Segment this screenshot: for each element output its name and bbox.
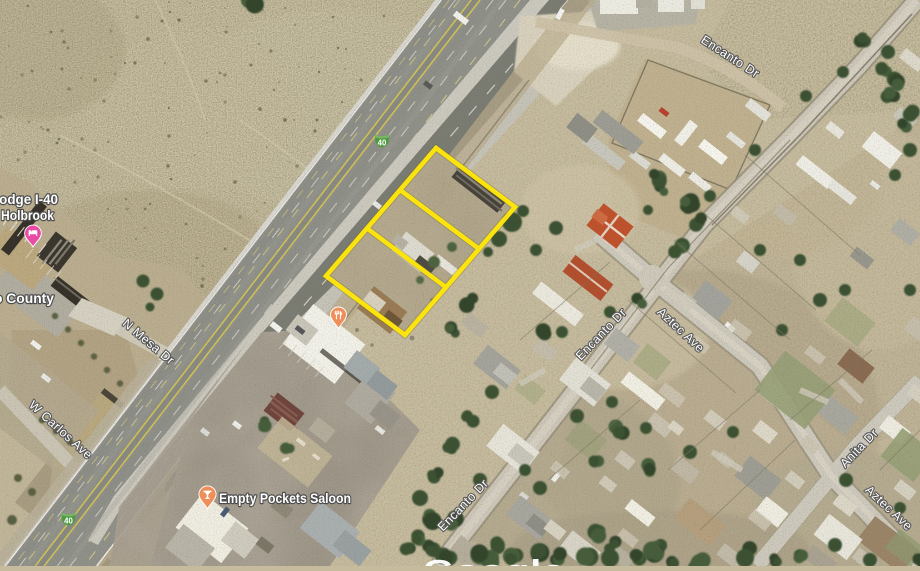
svg-text:40: 40	[378, 138, 387, 147]
svg-text:Lodge I-40: Lodge I-40	[0, 191, 58, 207]
svg-text:40: 40	[64, 516, 73, 525]
svg-text:Holbrook: Holbrook	[1, 207, 54, 223]
svg-text:Empty Pockets Saloon: Empty Pockets Saloon	[219, 490, 351, 506]
svg-text:Google: Google	[423, 555, 565, 566]
svg-text:Navajo County: Navajo County	[0, 290, 54, 306]
